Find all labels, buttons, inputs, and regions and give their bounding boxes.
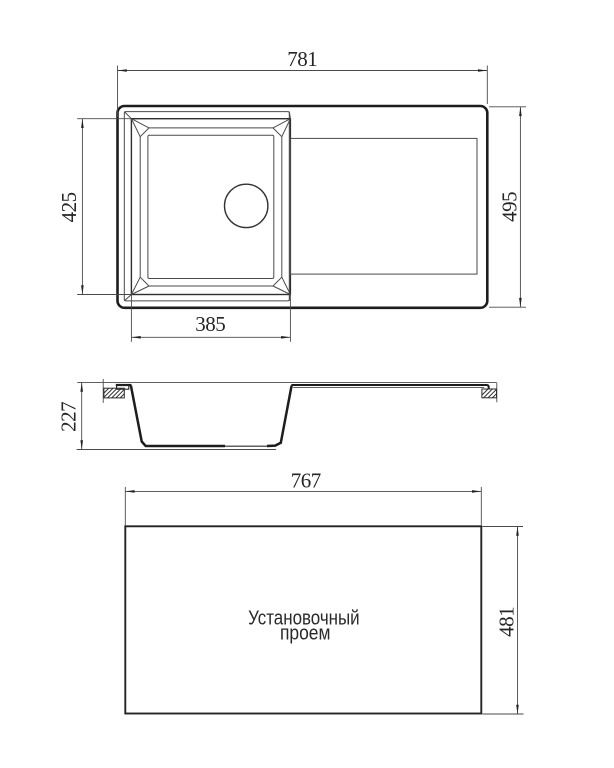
svg-text:767: 767 [291,468,321,492]
svg-text:425: 425 [57,192,81,222]
svg-text:227: 227 [57,402,81,432]
svg-text:481: 481 [495,607,519,637]
svg-text:781: 781 [287,47,317,71]
svg-text:проем: проем [280,623,331,645]
svg-text:495: 495 [498,192,522,222]
svg-text:385: 385 [195,312,225,336]
